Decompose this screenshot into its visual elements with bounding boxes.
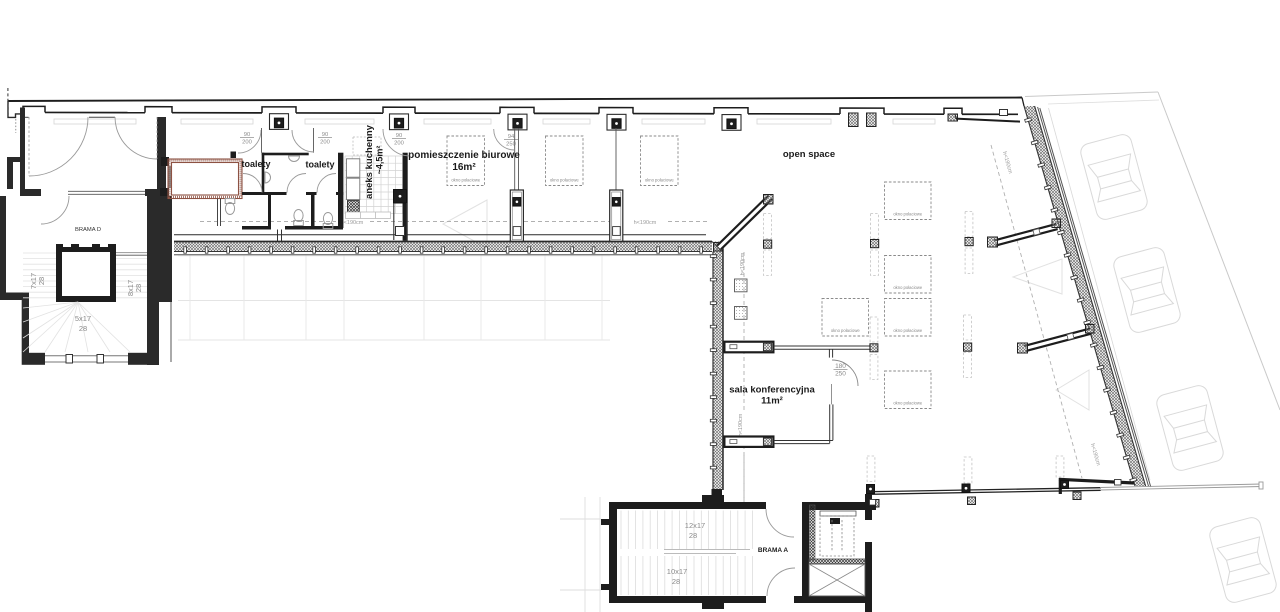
- svg-text:okno połaciowe: okno połaciowe: [893, 401, 923, 406]
- svg-text:28: 28: [79, 324, 87, 333]
- svg-text:h<190cm: h<190cm: [738, 413, 744, 436]
- svg-text:h<190cm: h<190cm: [740, 252, 746, 275]
- svg-text:10x17: 10x17: [667, 567, 687, 576]
- svg-text:toalety: toalety: [241, 159, 270, 169]
- svg-text:pomieszczenie biurowe: pomieszczenie biurowe: [408, 150, 520, 161]
- svg-text:5x17: 5x17: [75, 314, 91, 323]
- svg-text:28: 28: [672, 577, 680, 586]
- svg-text:~4,5m²: ~4,5m²: [375, 146, 385, 175]
- svg-text:okno połaciowe: okno połaciowe: [645, 178, 675, 183]
- svg-text:toalety: toalety: [305, 160, 334, 170]
- svg-text:180: 180: [835, 363, 846, 370]
- svg-text:90: 90: [396, 133, 402, 139]
- svg-text:16m²: 16m²: [452, 162, 476, 173]
- svg-text:BRAMA D: BRAMA D: [75, 227, 101, 233]
- svg-text:h<190cm: h<190cm: [634, 220, 657, 226]
- svg-text:94: 94: [508, 134, 515, 140]
- svg-text:28: 28: [689, 531, 697, 540]
- svg-text:okno połaciowe: okno połaciowe: [831, 328, 861, 333]
- svg-text:sala konferencyjna: sala konferencyjna: [729, 385, 815, 396]
- svg-text:90: 90: [322, 132, 328, 138]
- svg-text:12x17: 12x17: [685, 521, 705, 530]
- svg-text:okno połaciowe: okno połaciowe: [893, 328, 923, 333]
- svg-text:okno połaciowe: okno połaciowe: [451, 178, 481, 183]
- svg-text:okno połaciowe: okno połaciowe: [550, 178, 580, 183]
- svg-text:aneks kuchenny: aneks kuchenny: [364, 124, 375, 199]
- svg-text:200: 200: [394, 140, 404, 146]
- svg-text:open space: open space: [783, 149, 835, 160]
- svg-text:250: 250: [835, 370, 846, 377]
- svg-text:okno połaciowe: okno połaciowe: [893, 212, 923, 217]
- svg-text:90: 90: [244, 132, 250, 138]
- svg-text:h<190cm: h<190cm: [341, 220, 364, 226]
- svg-text:11m²: 11m²: [761, 396, 783, 407]
- svg-text:200: 200: [320, 139, 330, 145]
- svg-text:okno połaciowe: okno połaciowe: [893, 285, 923, 290]
- svg-text:BRAMA A: BRAMA A: [758, 547, 789, 554]
- svg-text:28: 28: [37, 277, 46, 285]
- svg-text:200: 200: [242, 139, 252, 145]
- svg-text:28: 28: [134, 284, 143, 292]
